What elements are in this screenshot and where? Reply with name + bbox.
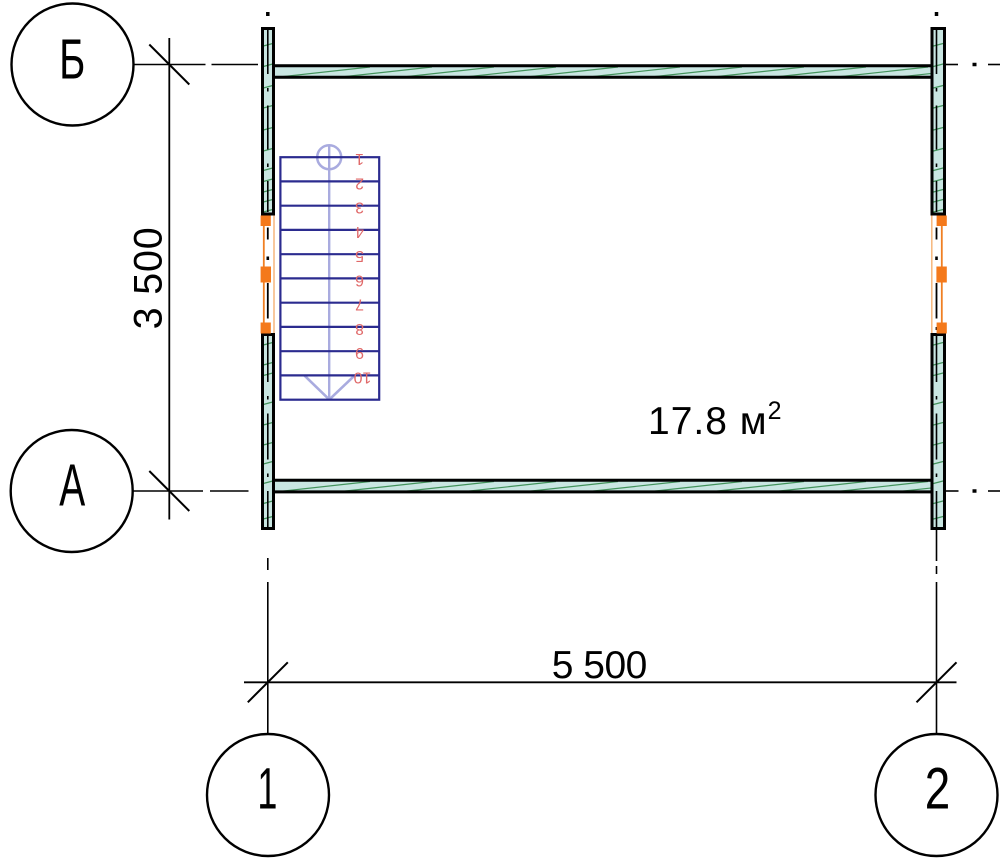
svg-text:3 500: 3 500: [127, 226, 171, 329]
svg-text:Б: Б: [59, 28, 85, 92]
svg-text:2: 2: [925, 758, 950, 822]
svg-text:5: 5: [355, 247, 364, 264]
svg-text:6: 6: [355, 271, 364, 288]
svg-text:17.8 м2: 17.8 м2: [648, 397, 782, 443]
svg-text:2: 2: [355, 174, 364, 191]
svg-text:5 500: 5 500: [552, 644, 647, 687]
svg-text:1: 1: [355, 150, 364, 167]
svg-text:10: 10: [354, 368, 372, 385]
svg-text:8: 8: [355, 320, 364, 337]
svg-text:А: А: [59, 452, 85, 518]
svg-text:3: 3: [355, 199, 364, 216]
svg-text:4: 4: [355, 223, 364, 240]
svg-text:9: 9: [355, 344, 364, 361]
svg-text:1: 1: [257, 757, 277, 822]
svg-text:7: 7: [355, 296, 364, 313]
